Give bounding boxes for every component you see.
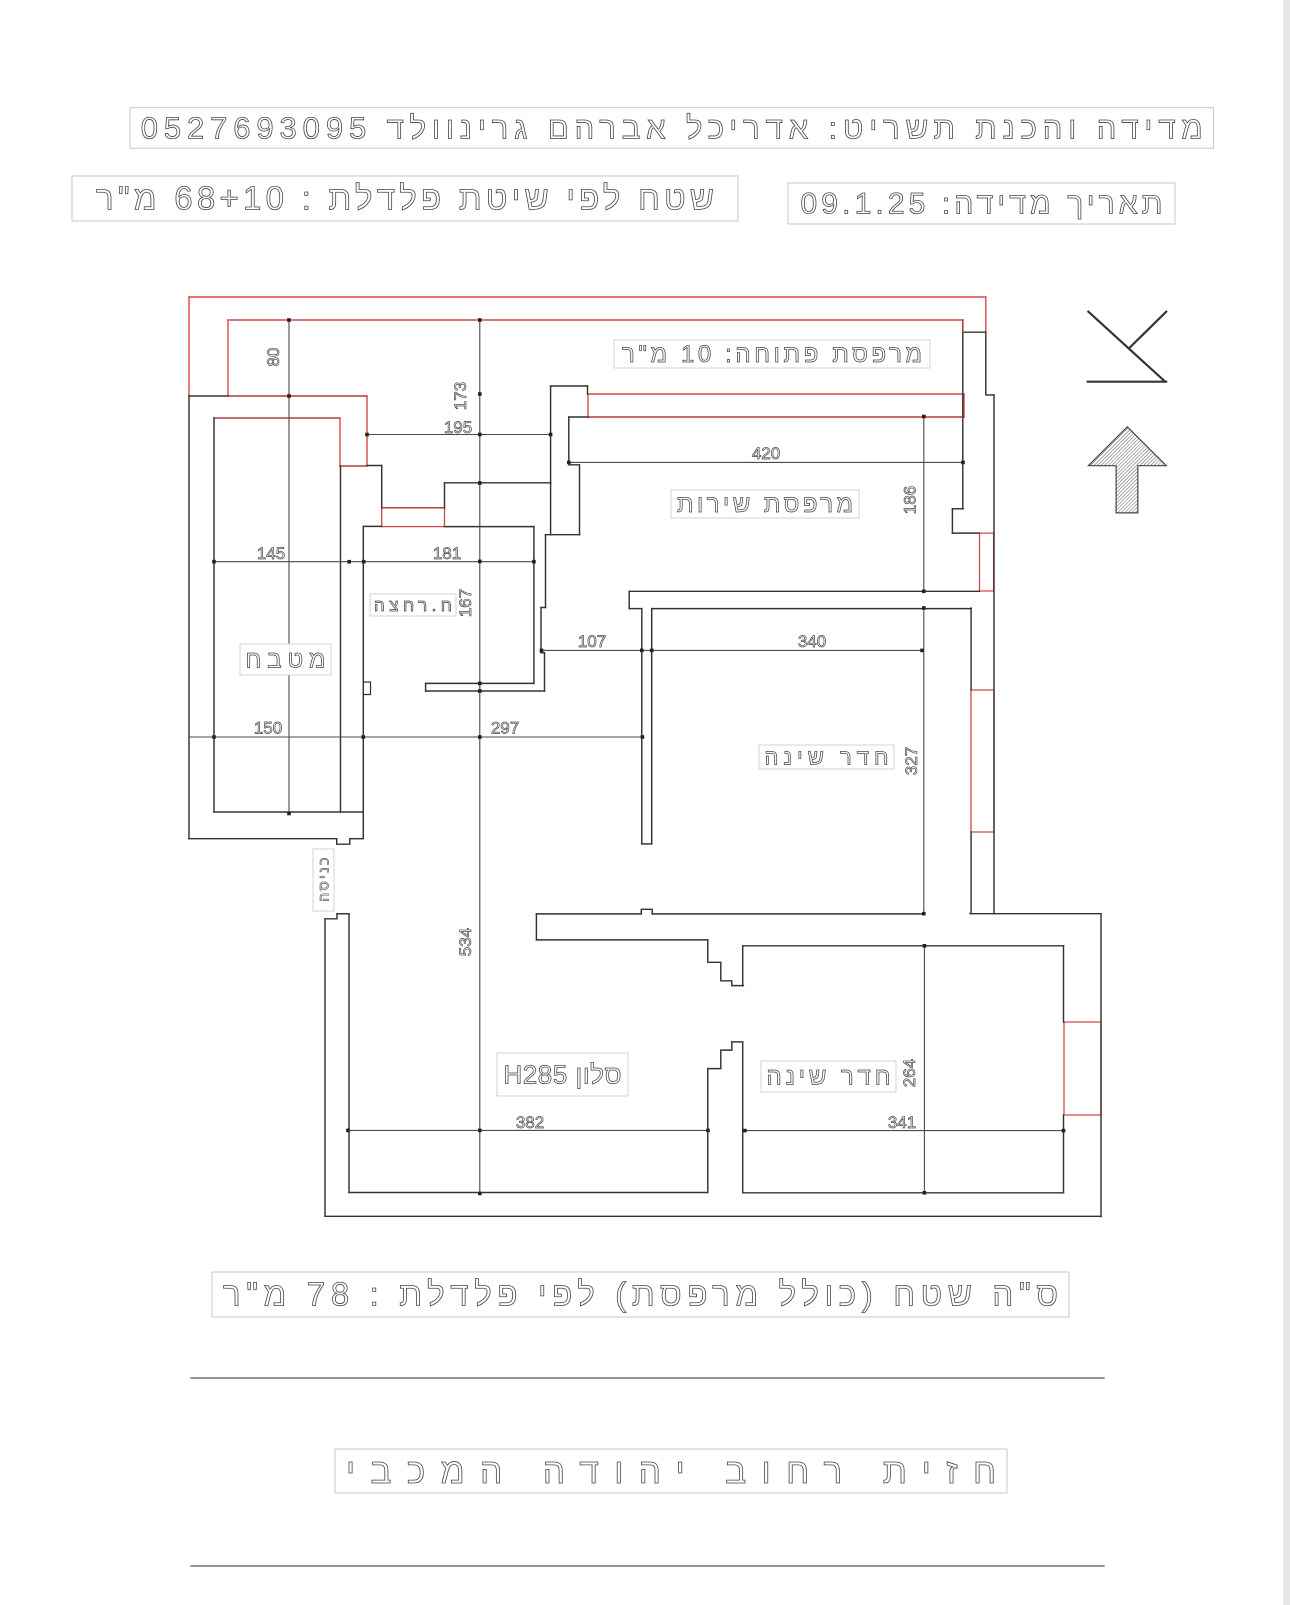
svg-text:382: 382 <box>516 1113 544 1132</box>
svg-text:145: 145 <box>257 544 285 563</box>
svg-text:173: 173 <box>451 382 470 410</box>
svg-text:ס"ה שטח (כולל מרפסת) לפי פלדלת: ס"ה שטח (כולל מרפסת) לפי פלדלת : 78 מ"ר <box>223 1276 1058 1313</box>
svg-text:297: 297 <box>491 719 519 738</box>
svg-text:סלון H285: סלון H285 <box>504 1059 622 1089</box>
svg-text:534: 534 <box>456 928 475 956</box>
svg-text:195: 195 <box>444 418 472 437</box>
svg-text:107: 107 <box>578 632 606 651</box>
svg-text:327: 327 <box>902 747 921 775</box>
svg-text:תאריך מדידה: 09.1.25: תאריך מדידה: 09.1.25 <box>801 188 1163 221</box>
svg-text:כניסה: כניסה <box>316 855 332 902</box>
svg-text:181: 181 <box>433 544 461 563</box>
svg-text:186: 186 <box>901 486 920 514</box>
svg-text:150: 150 <box>254 719 282 738</box>
svg-text:341: 341 <box>888 1113 916 1132</box>
svg-text:167: 167 <box>456 589 475 617</box>
svg-text:264: 264 <box>900 1059 919 1087</box>
svg-text:420: 420 <box>752 444 780 463</box>
svg-text:80: 80 <box>264 348 283 367</box>
svg-text:340: 340 <box>798 632 826 651</box>
